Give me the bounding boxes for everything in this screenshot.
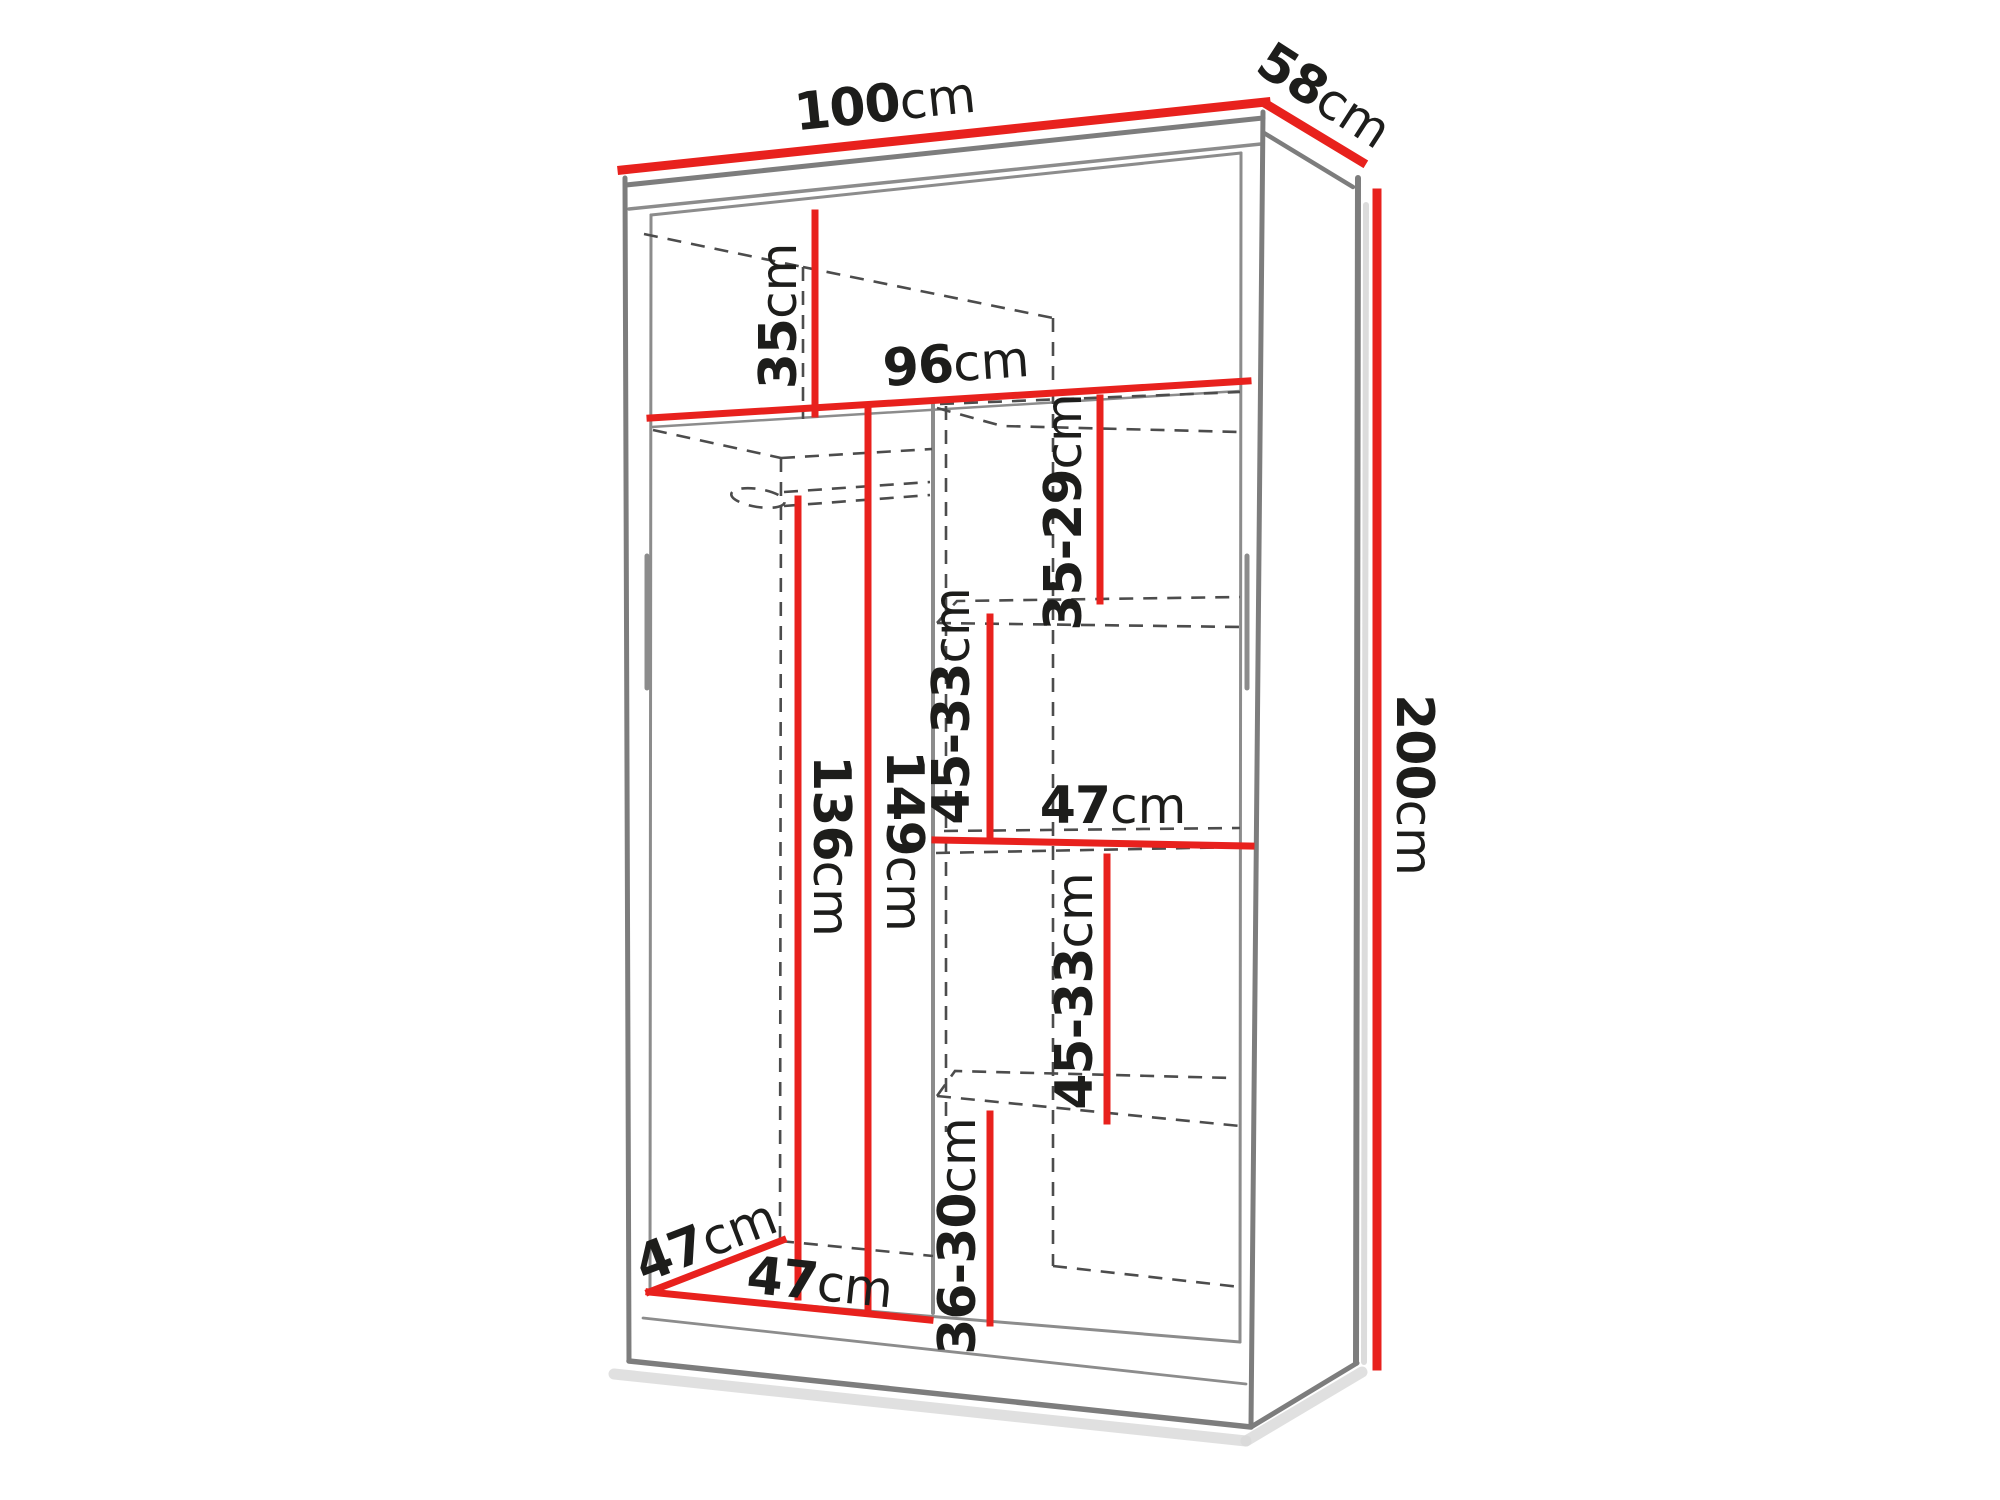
ceiling-back-edge: [803, 267, 1053, 318]
hanging-rail-top: [784, 482, 930, 492]
hanging-rail-end: [730, 485, 786, 511]
dimension-labels: 100cm 58cm 200cm 35cm 96cm 35-29cm 45-33…: [627, 31, 1444, 1355]
bottom-side-edge: [1251, 1363, 1357, 1427]
dim-label-left-width: 47cm: [744, 1246, 896, 1321]
dim-label-gap-bottom-right: 36-30cm: [928, 1117, 988, 1355]
bottom-front-edge: [629, 1361, 1251, 1427]
bottom-back-edge-right: [1053, 1266, 1240, 1287]
right-front-edge: [1251, 112, 1263, 1426]
interior-left-wall: [650, 215, 651, 1293]
right-back-edge: [1356, 178, 1358, 1363]
dim-label-gap-lower-right: 45-33cm: [1045, 872, 1105, 1110]
dim-label-height: 200cm: [1384, 694, 1444, 876]
interior-ceiling-edge: [651, 153, 1241, 215]
diagram-canvas: 100cm 58cm 200cm 35cm 96cm 35-29cm 45-33…: [0, 0, 2000, 1500]
dim-label-hang-outer: 149cm: [874, 750, 934, 932]
back-left-edge: [780, 458, 781, 1241]
wardrobe-dimension-diagram: 100cm 58cm 200cm 35cm 96cm 35-29cm 45-33…: [0, 0, 2000, 1500]
dim-line-shelf-47: [935, 840, 1251, 846]
interior-right-wall: [1240, 153, 1241, 1342]
dim-label-top-shelf: 35cm: [749, 243, 809, 390]
side-shadow: [1364, 205, 1366, 1362]
shelf-depth-left: [653, 430, 781, 458]
floor-shadow-front: [614, 1374, 1246, 1441]
left-front-edge: [625, 178, 629, 1361]
top-right-depth-edge: [1264, 133, 1353, 187]
floor-shadow-side: [1246, 1372, 1362, 1441]
dim-label-shelf-width: 47cm: [1040, 776, 1187, 836]
dim-label-hang-inner: 136cm: [801, 755, 861, 937]
shelf-back-edge-left: [781, 449, 932, 458]
hanging-rail-bottom: [784, 495, 930, 506]
dim-label-gap-upper-right: 35-29cm: [1034, 393, 1094, 631]
dim-label-interior-width: 96cm: [881, 329, 1031, 399]
